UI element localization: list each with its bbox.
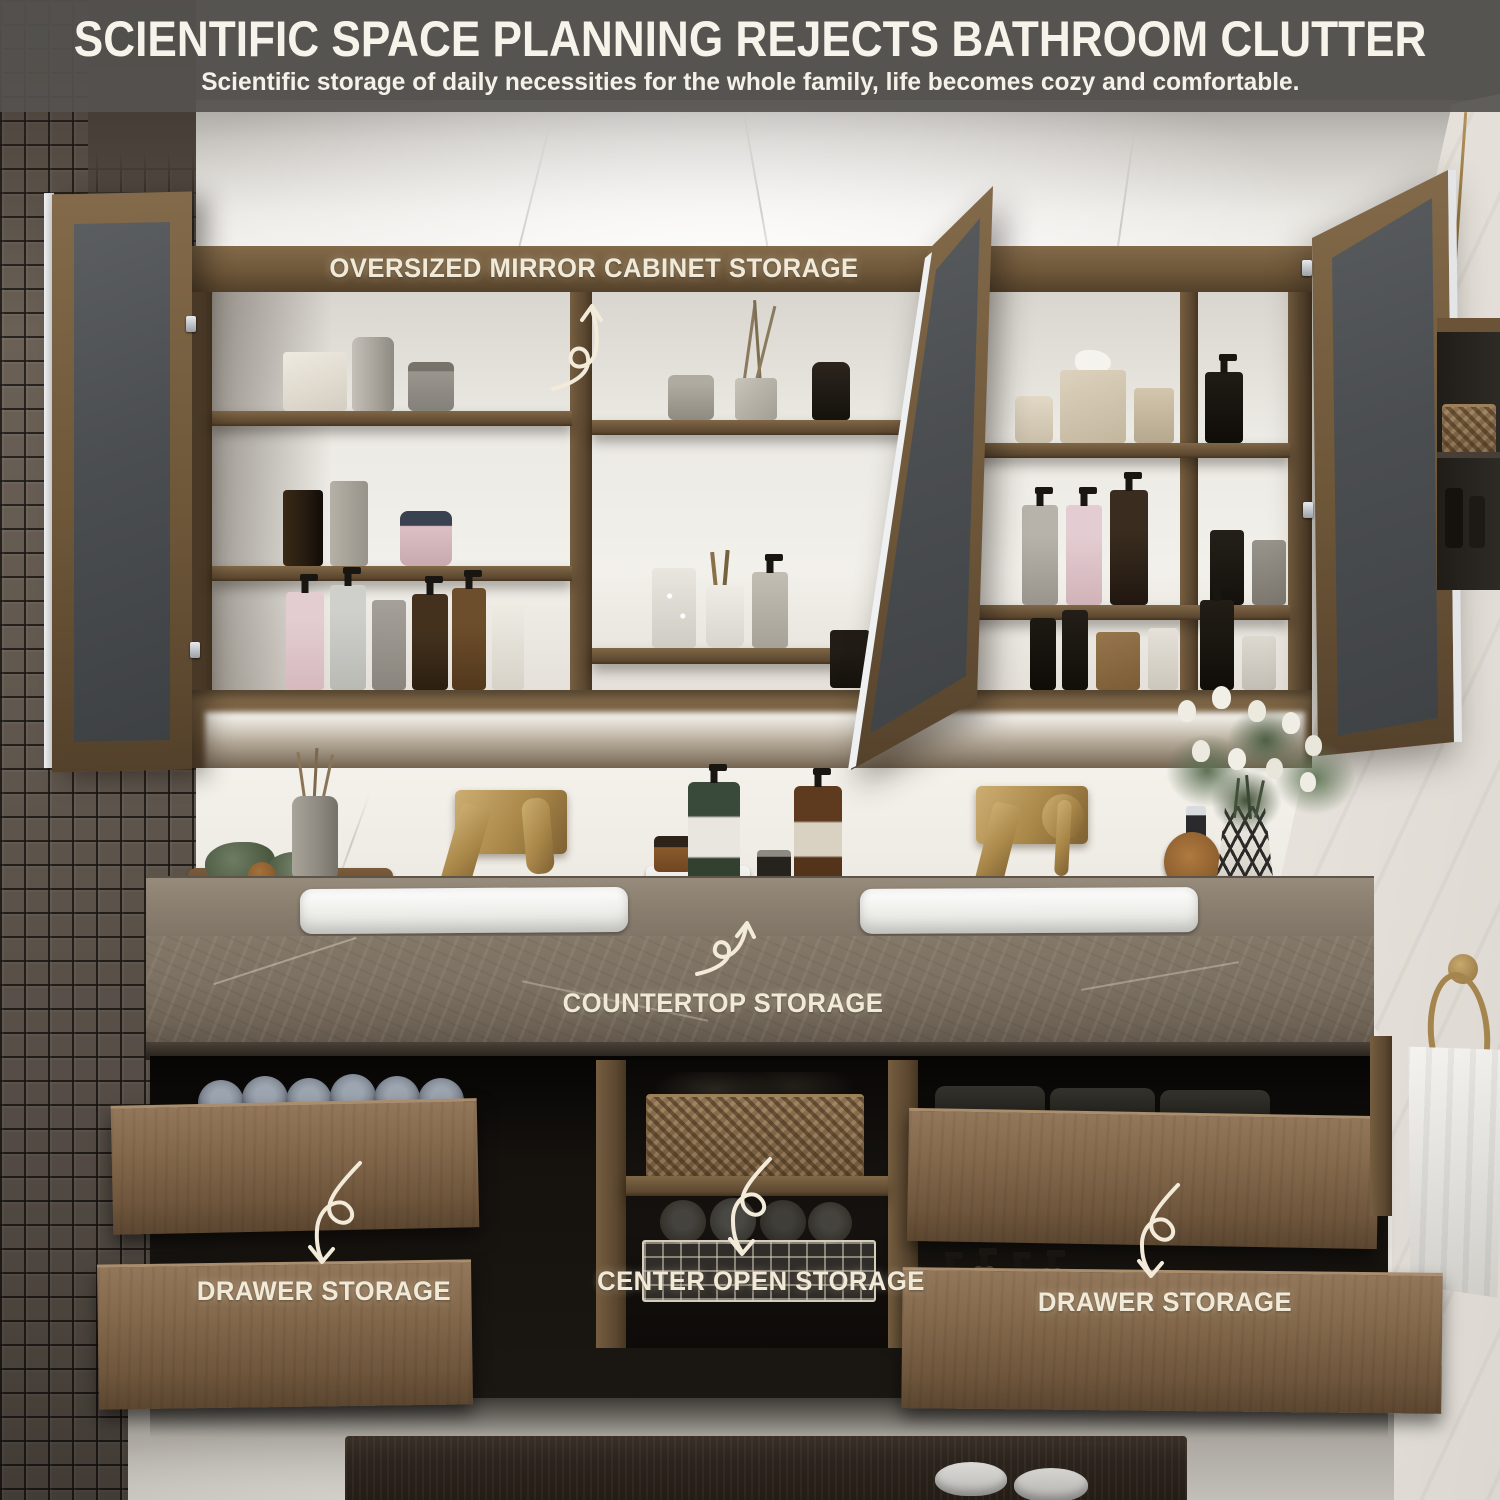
bathroom-vanity-product-image: OVERSIZED MIRROR CABINET STORAGE COUNTER… (0, 0, 1500, 1500)
cream-jar (1015, 396, 1053, 443)
amber-box (1096, 632, 1140, 690)
slipper (1014, 1468, 1088, 1500)
dark-pump-bottle (1200, 600, 1234, 690)
gray-pump-bottle (1022, 505, 1058, 605)
cosmetic-box (283, 352, 347, 411)
page-title: SCIENTIFIC SPACE PLANNING REJECTS BATHRO… (0, 12, 1500, 67)
toothbrush-cup (706, 585, 744, 648)
cabinet-divider-left (570, 292, 592, 690)
left-mirror-door (52, 192, 192, 773)
cabinet-shelf (212, 411, 572, 426)
center-open-label: CENTER OPEN STORAGE (597, 1266, 925, 1297)
door-hinge (1302, 260, 1312, 276)
slipper (935, 1462, 1007, 1496)
beige-dispenser (1134, 388, 1174, 443)
glass-jar (408, 362, 454, 411)
dark-bottle (1445, 488, 1463, 548)
amber-jar (654, 836, 692, 872)
left-sink (300, 887, 628, 934)
white-rose (1305, 735, 1322, 756)
compartment-shelf (626, 1176, 888, 1196)
white-bottle (1148, 628, 1178, 690)
black-pump-bottle (1205, 372, 1243, 443)
door-hinge (1303, 502, 1313, 518)
door-hinge (190, 642, 200, 658)
soap-dispenser (752, 572, 788, 648)
white-rose (1300, 772, 1316, 792)
right-sink (860, 887, 1198, 934)
left-drawer-label: DRAWER STORAGE (197, 1276, 451, 1307)
right-top-drawer-front (907, 1108, 1379, 1249)
left-top-drawer-front (111, 1098, 480, 1235)
amber-bottle (283, 490, 323, 566)
page-title-text: SCIENTIFIC SPACE PLANNING REJECTS BATHRO… (74, 11, 1427, 69)
gray-bottle (1252, 540, 1286, 605)
compartment-left-stile (596, 1060, 626, 1348)
page-subtitle-text: Scientific storage of daily necessities … (201, 68, 1299, 97)
gray-pump-bottle (330, 585, 366, 690)
candle-jar (668, 375, 714, 420)
white-bottle (492, 602, 524, 690)
amber-pump-bottle (452, 588, 486, 690)
cabinet-shelf (212, 566, 572, 581)
glass-bottle (352, 337, 394, 411)
countertop-label: COUNTERTOP STORAGE (563, 988, 884, 1019)
hanging-towel (1396, 1046, 1500, 1297)
wicker-basket-small (1442, 404, 1496, 455)
pink-pump-bottle (286, 592, 324, 690)
spray-bottle (1030, 618, 1056, 690)
wall-shelf-lintel (1437, 318, 1500, 332)
under-cabinet-light-glow (205, 712, 1305, 784)
rolled-towel-dark (710, 1198, 756, 1244)
right-drawer-label: DRAWER STORAGE (1038, 1287, 1292, 1318)
dark-bottle (1469, 496, 1485, 548)
pink-pump-bottle (1066, 505, 1102, 605)
white-rose (1248, 700, 1266, 722)
white-rose (1178, 700, 1196, 722)
amber-pump-bottle (412, 594, 448, 690)
middle-mirror-door (840, 178, 1000, 784)
amber-pump-bottle (1110, 490, 1148, 605)
rolled-towel-dark (808, 1202, 852, 1244)
rolled-towel-dark (660, 1200, 706, 1244)
bottle (372, 600, 406, 690)
pebble-jar (652, 568, 696, 648)
white-rose (1192, 740, 1210, 762)
rolled-towel-dark (760, 1200, 806, 1244)
white-rose (1228, 748, 1246, 770)
cream-jar (400, 511, 452, 566)
wall-shelf-board (1437, 452, 1500, 458)
cabinet-divider-right (1180, 292, 1198, 690)
door-hinge (186, 316, 196, 332)
diffuser-bottle (735, 378, 777, 420)
glass-bottle (330, 481, 368, 566)
white-rose (1212, 686, 1231, 709)
white-jar (1242, 636, 1276, 690)
mirror-cabinet-label: OVERSIZED MIRROR CABINET STORAGE (329, 253, 858, 284)
spray-bottle (1062, 610, 1088, 690)
page-subtitle: Scientific storage of daily necessities … (0, 68, 1500, 97)
header-band: SCIENTIFIC SPACE PLANNING REJECTS BATHRO… (0, 0, 1500, 112)
wall-shelf-unit (1437, 318, 1500, 590)
left-door-mirror-glass (74, 222, 170, 742)
diffuser-bottle (292, 796, 338, 878)
white-rose (1266, 758, 1283, 779)
wall-corner-trim (1370, 1036, 1392, 1216)
wicker-basket (646, 1094, 864, 1179)
tissue-box (1060, 370, 1126, 443)
white-rose (1282, 712, 1300, 734)
